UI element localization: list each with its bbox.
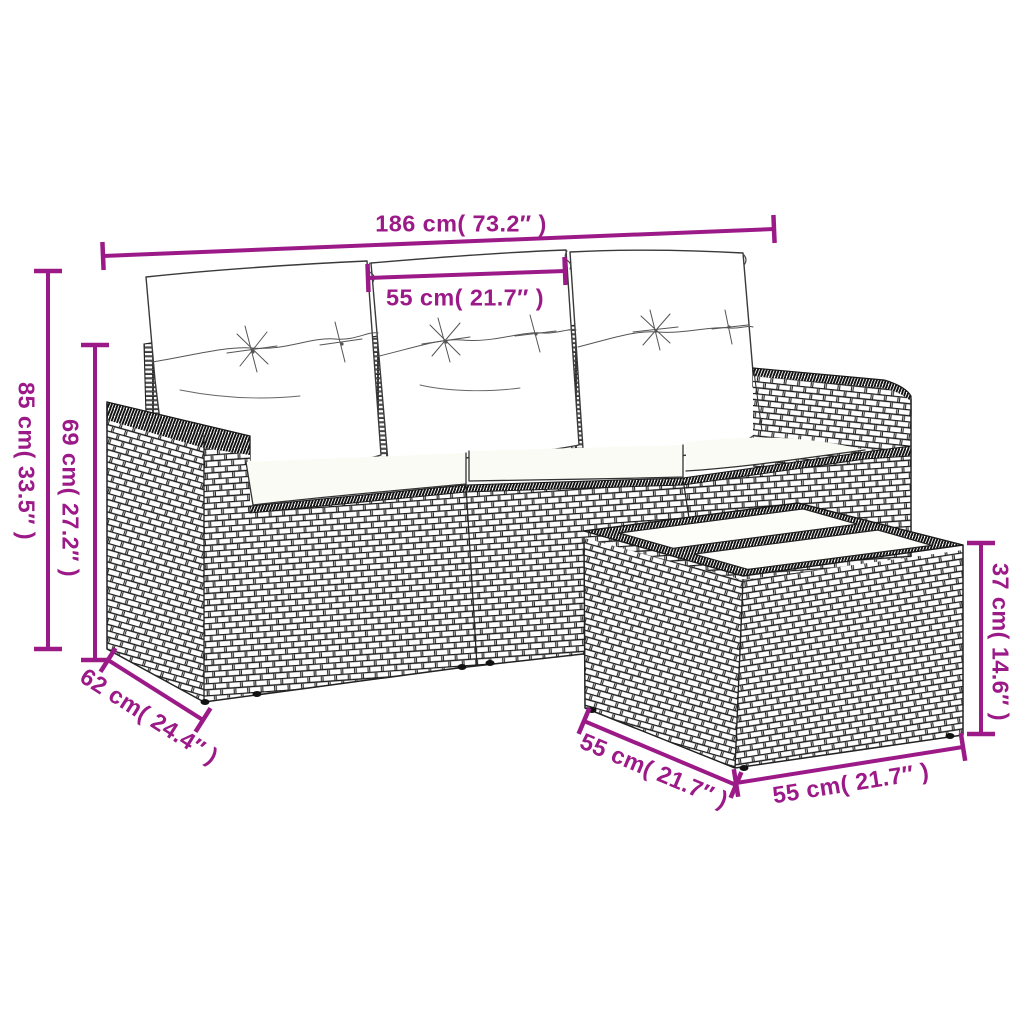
svg-text:55 cm( 21.7″ ): 55 cm( 21.7″ ) [386, 285, 544, 311]
svg-text:37 cm( 14.6″ ): 37 cm( 14.6″ ) [988, 563, 1014, 721]
svg-text:69 cm( 27.2″ ): 69 cm( 27.2″ ) [58, 419, 84, 577]
svg-text:186 cm( 73.2″ ): 186 cm( 73.2″ ) [375, 211, 546, 237]
svg-text:85 cm( 33.5″ ): 85 cm( 33.5″ ) [14, 382, 40, 540]
